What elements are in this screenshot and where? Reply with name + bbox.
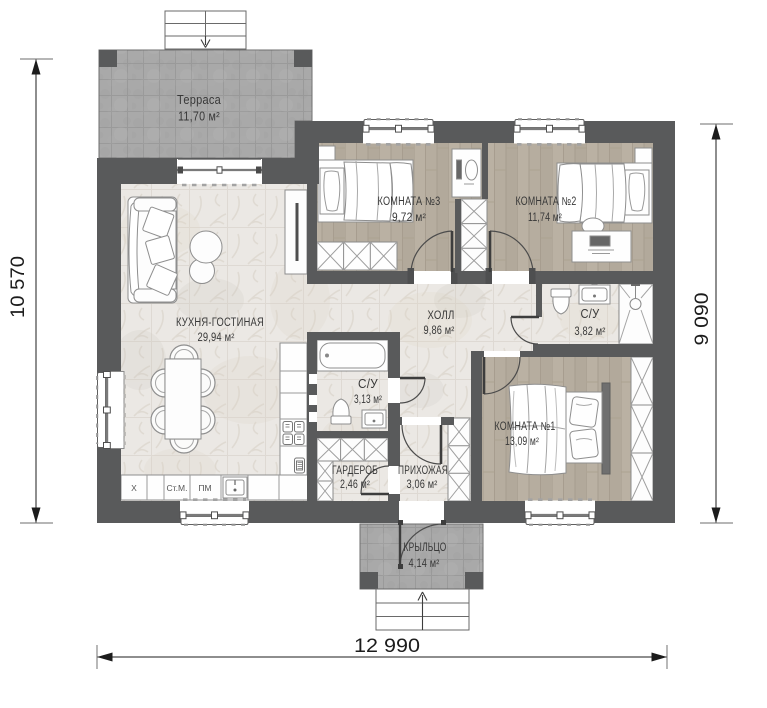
svg-text:3,82 м²: 3,82 м² <box>575 326 606 338</box>
svg-text:2,46 м²: 2,46 м² <box>340 479 370 491</box>
svg-text:Х: Х <box>131 483 137 493</box>
svg-text:КОМНАТА №2: КОМНАТА №2 <box>516 196 577 208</box>
svg-text:КУХНЯ-ГОСТИНАЯ: КУХНЯ-ГОСТИНАЯ <box>176 317 264 329</box>
svg-text:10 570: 10 570 <box>8 256 29 318</box>
svg-text:КОМНАТА №3: КОМНАТА №3 <box>378 196 441 208</box>
svg-text:КРЫЛЬЦО: КРЫЛЬЦО <box>404 542 447 554</box>
svg-text:9,72 м²: 9,72 м² <box>392 212 426 224</box>
svg-text:9 090: 9 090 <box>692 293 713 346</box>
svg-text:ГАРДЕРОБ: ГАРДЕРОБ <box>332 465 378 477</box>
svg-text:ПМ: ПМ <box>198 483 211 493</box>
svg-text:КОМНАТА №1: КОМНАТА №1 <box>495 421 556 433</box>
svg-text:С/У: С/У <box>581 306 600 321</box>
svg-text:13,09 м²: 13,09 м² <box>505 436 539 448</box>
svg-text:9,86 м²: 9,86 м² <box>424 325 455 337</box>
svg-text:3,06 м²: 3,06 м² <box>407 479 438 491</box>
svg-text:11,70 м²: 11,70 м² <box>178 110 220 124</box>
svg-text:Ст.М.: Ст.М. <box>167 483 188 493</box>
svg-text:ХОЛЛ: ХОЛЛ <box>428 310 455 322</box>
svg-text:4,14 м²: 4,14 м² <box>409 558 440 570</box>
svg-text:29,94 м²: 29,94 м² <box>198 332 235 344</box>
svg-text:С/У: С/У <box>358 376 378 391</box>
svg-text:Терраса: Терраса <box>177 93 221 107</box>
svg-text:ПРИХОЖАЯ: ПРИХОЖАЯ <box>398 465 448 477</box>
svg-text:11,74 м²: 11,74 м² <box>528 212 562 224</box>
svg-text:12 990: 12 990 <box>354 636 420 657</box>
svg-text:3,13 м²: 3,13 м² <box>354 394 382 406</box>
